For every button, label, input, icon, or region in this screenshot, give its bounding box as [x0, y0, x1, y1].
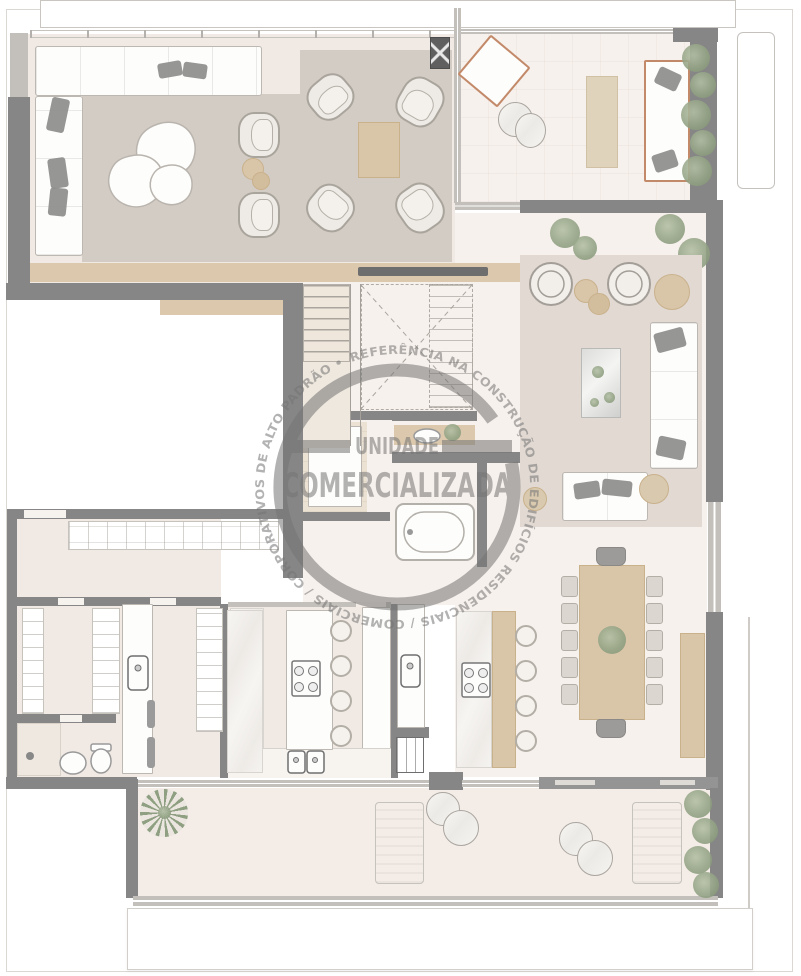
- fixtures-layer: [0, 0, 801, 976]
- floor-plan-canvas: REFERÊNCIA NA CONSTRUÇÃO DE EDIFÍCIOS RE…: [0, 0, 801, 976]
